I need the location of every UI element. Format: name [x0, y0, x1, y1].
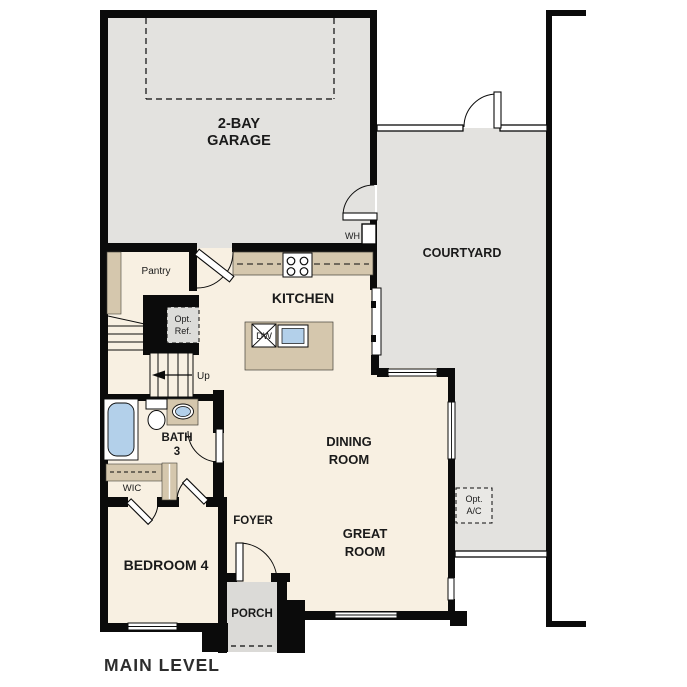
wall: [437, 368, 455, 377]
toilet-bowl: [148, 411, 165, 430]
window-mullion: [371, 301, 376, 308]
great-room-label: ROOM: [345, 544, 385, 559]
property-wall-vertical: [546, 10, 552, 627]
wall: [213, 390, 224, 433]
kitchen-sink-basin: [282, 329, 304, 344]
wall: [280, 600, 305, 653]
opt-ref-label: Opt.: [174, 314, 191, 324]
wall: [232, 243, 377, 252]
kitchen-slider-window: [372, 288, 381, 355]
porch-label: PORCH: [231, 608, 273, 620]
property-wall-bottom-flange: [546, 621, 586, 627]
bedroom-4-label: BEDROOM 4: [124, 557, 209, 573]
great-room-side-window: [448, 578, 454, 600]
garage-label: GARAGE: [207, 133, 271, 149]
wall: [448, 599, 455, 613]
courtyard-gate: [494, 92, 501, 128]
courtyard-top-wall: [500, 125, 547, 131]
dining-room-label: ROOM: [329, 452, 369, 467]
burner: [300, 257, 308, 265]
window-mullion: [371, 335, 376, 342]
property-wall-top-flange: [546, 10, 586, 16]
garage-courtyard-door: [343, 213, 377, 220]
plan-title: MAIN LEVEL: [104, 655, 220, 675]
wall: [448, 377, 455, 403]
dishwasher-label: DW: [256, 331, 272, 342]
foyer-label: FOYER: [233, 515, 273, 527]
floor-plan-page: 2-BAY GARAGE COURTYARD KITCHEN DINING RO…: [0, 0, 687, 687]
water-heater-label: WH: [345, 231, 360, 241]
dining-room-label: DINING: [326, 434, 372, 449]
bath-3-label: BATH: [161, 432, 192, 444]
vanity-sink-basin: [176, 407, 191, 417]
front-door: [236, 543, 243, 581]
courtyard-top-wall: [377, 125, 463, 131]
stairs-up-label: Up: [197, 371, 210, 382]
wall: [450, 611, 467, 626]
bath-door: [216, 429, 223, 463]
floor-plan-drawing: 2-BAY GARAGE COURTYARD KITCHEN DINING RO…: [0, 0, 687, 687]
opt-ac-label: A/C: [466, 506, 482, 516]
wall: [370, 10, 377, 185]
water-heater: [362, 224, 376, 244]
toilet-tank: [146, 399, 167, 409]
pantry-shelf: [107, 252, 121, 314]
burner: [300, 268, 308, 276]
opt-ref-label: Ref.: [175, 326, 192, 336]
wall: [218, 505, 227, 625]
bath-3-label: 3: [174, 446, 180, 458]
wall: [100, 243, 197, 252]
burner: [287, 268, 295, 276]
wall: [448, 459, 455, 578]
opt-ac-label: Opt.: [465, 494, 482, 504]
wall: [377, 368, 389, 377]
opt-ref-box: [167, 307, 199, 343]
courtyard-label: COURTYARD: [423, 246, 502, 260]
wic-label: WIC: [123, 483, 142, 494]
courtyard-bottom-wall: [455, 551, 547, 557]
pantry-label: Pantry: [142, 266, 171, 277]
wall: [100, 497, 128, 507]
wall: [189, 245, 197, 291]
burner: [287, 257, 295, 265]
bathtub: [108, 403, 134, 456]
wall: [206, 497, 227, 507]
wic-shelf: [106, 464, 162, 481]
great-room-label: GREAT: [343, 526, 388, 541]
wall: [100, 10, 108, 632]
garage-label: 2-BAY: [218, 116, 261, 132]
wall: [100, 10, 377, 18]
kitchen-label: KITCHEN: [272, 290, 334, 306]
